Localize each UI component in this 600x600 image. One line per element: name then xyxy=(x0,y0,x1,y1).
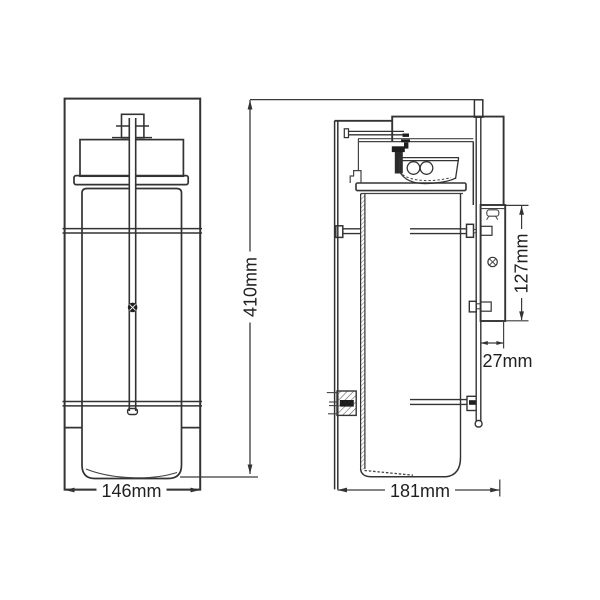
drawing-canvas: 410mm 146mm 181mm 127mm 27mm xyxy=(0,0,600,600)
dimension-label-side-projection: 181mm xyxy=(390,481,450,501)
dimension-label-overall-height: 410mm xyxy=(241,257,261,317)
background xyxy=(0,0,600,600)
technical-drawing: 410mm 146mm 181mm 127mm 27mm xyxy=(0,0,600,600)
dimension-label-front-width: 146mm xyxy=(101,481,161,501)
screw-icon xyxy=(128,303,138,313)
front-center-rod xyxy=(129,118,135,411)
dimension-label-wall-plate-height: 127mm xyxy=(511,233,531,293)
dimension-label-wall-clearance: 27mm xyxy=(483,351,533,371)
